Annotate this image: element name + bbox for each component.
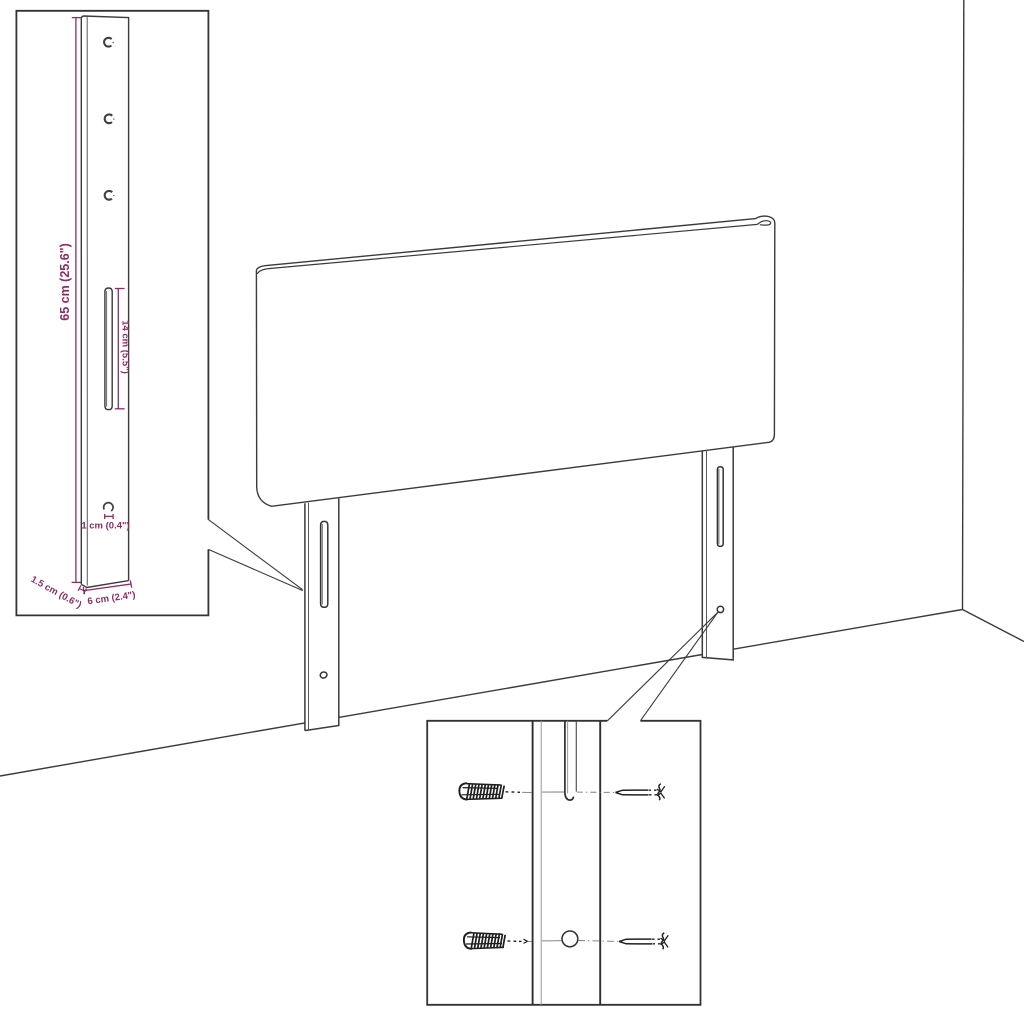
svg-text:14 cm (5.5"): 14 cm (5.5") <box>119 320 130 374</box>
svg-text:1 cm (0.4"): 1 cm (0.4") <box>81 521 129 532</box>
svg-text:65 cm (25.6"): 65 cm (25.6") <box>58 243 72 321</box>
